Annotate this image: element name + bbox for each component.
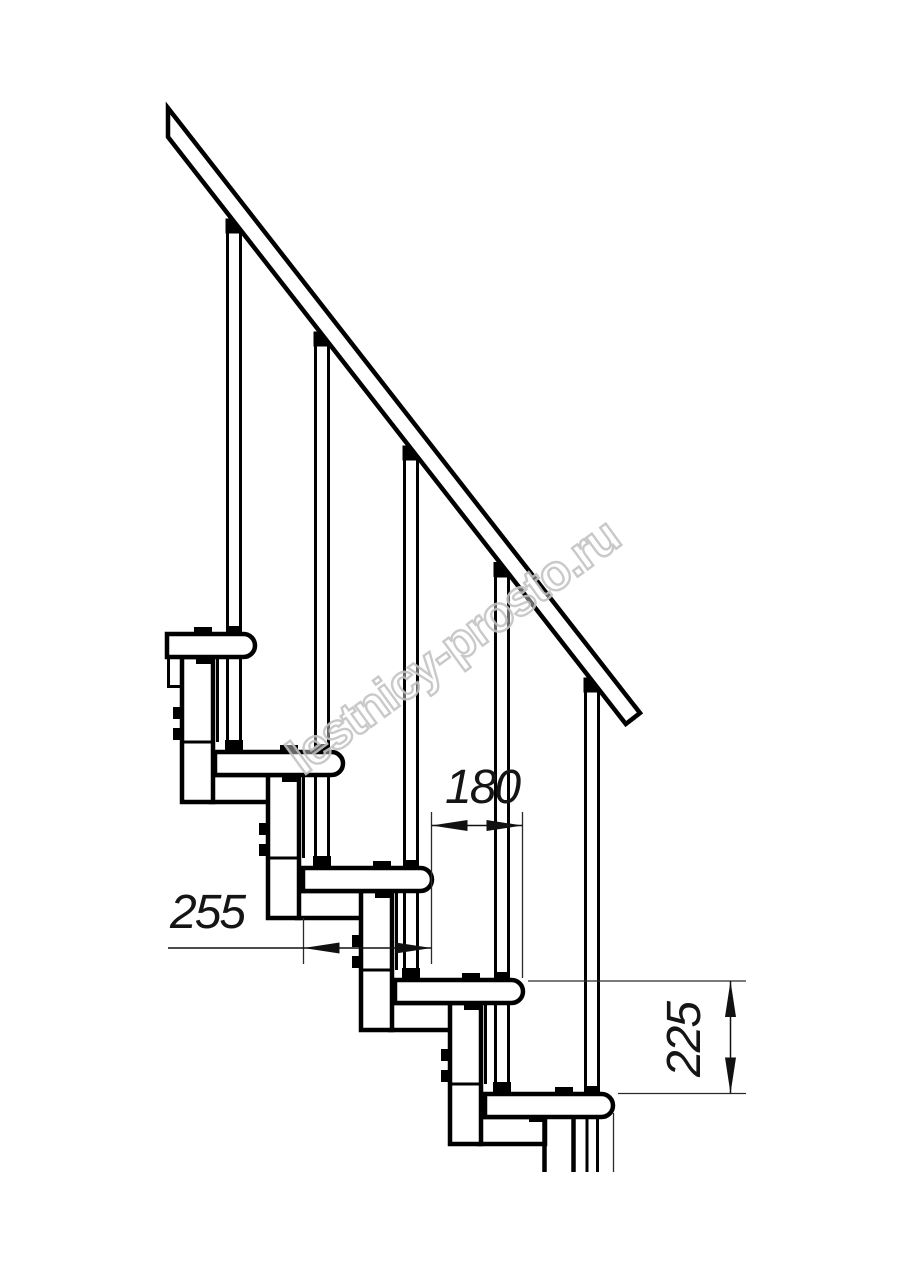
tread-nut-icon <box>196 657 212 664</box>
staircase-drawing-page: 180 255 225 lestnicy-prosto.ru <box>0 0 914 1280</box>
bolt-icon <box>173 707 183 719</box>
bolt-icon <box>259 823 269 835</box>
tread-nut-icon <box>464 1003 480 1010</box>
arrowhead-right-icon <box>487 820 523 831</box>
support-column-2 <box>268 775 299 918</box>
dimension-rise: 225 <box>528 981 746 1094</box>
baluster-2-base-collar <box>313 856 331 868</box>
arrowhead-left-icon <box>304 943 340 954</box>
tread-bolt-icon <box>462 973 480 980</box>
baluster-1-shaft <box>228 232 241 752</box>
arrowhead-left-icon <box>432 820 468 831</box>
baluster-5-tread-collar <box>584 1086 600 1094</box>
module-connector-3 <box>390 1003 452 1030</box>
lower-cutoff-lines <box>545 1113 614 1172</box>
bolt-icon <box>352 956 362 968</box>
baluster-4-base-collar <box>493 1082 511 1094</box>
bolt-icon <box>173 728 183 740</box>
tread-bolt-icon <box>194 627 212 634</box>
modular-staircase-side-view: 180 255 225 lestnicy-prosto.ru <box>0 0 914 1280</box>
arrowhead-down-icon <box>725 1058 736 1094</box>
baluster-4-tread-collar <box>494 972 510 980</box>
baluster-3-tread-collar <box>403 860 419 868</box>
baluster-3-shaft <box>405 459 418 980</box>
bolt-icon <box>352 935 362 947</box>
dimension-label-tread-depth: 255 <box>169 886 246 939</box>
tread-nut-icon <box>282 775 298 782</box>
support-column-4 <box>450 1003 481 1144</box>
support-column-3 <box>361 891 392 1030</box>
arrowhead-right-icon <box>396 943 432 954</box>
tread-bolt-icon <box>555 1087 573 1094</box>
baluster-5-shaft <box>586 691 599 1095</box>
baluster-2 <box>314 332 331 869</box>
tread-5 <box>485 1094 613 1117</box>
baluster-5 <box>584 678 601 1096</box>
support-column-1 <box>182 657 213 802</box>
tread-nut-icon <box>375 891 391 898</box>
module-connector-1 <box>211 775 270 802</box>
baluster-2-shaft <box>316 345 329 868</box>
module-connector-2 <box>297 891 363 918</box>
baluster-1-base-collar <box>225 740 243 752</box>
tread-1 <box>167 634 255 657</box>
arrowhead-up-icon <box>725 981 736 1017</box>
bolt-icon <box>259 844 269 856</box>
baluster-4-shaft <box>496 576 509 1094</box>
tread-4 <box>395 980 523 1003</box>
baluster-1-tread-collar <box>226 626 242 634</box>
dimension-label-going: 180 <box>445 761 521 814</box>
bolt-icon <box>441 1070 451 1082</box>
tread-bolt-icon <box>373 861 391 868</box>
baluster-3-base-collar <box>402 968 420 980</box>
bolt-icon <box>441 1049 451 1061</box>
baluster-1 <box>226 219 243 753</box>
tread-3 <box>303 868 432 891</box>
dimension-label-rise: 225 <box>658 1001 711 1078</box>
